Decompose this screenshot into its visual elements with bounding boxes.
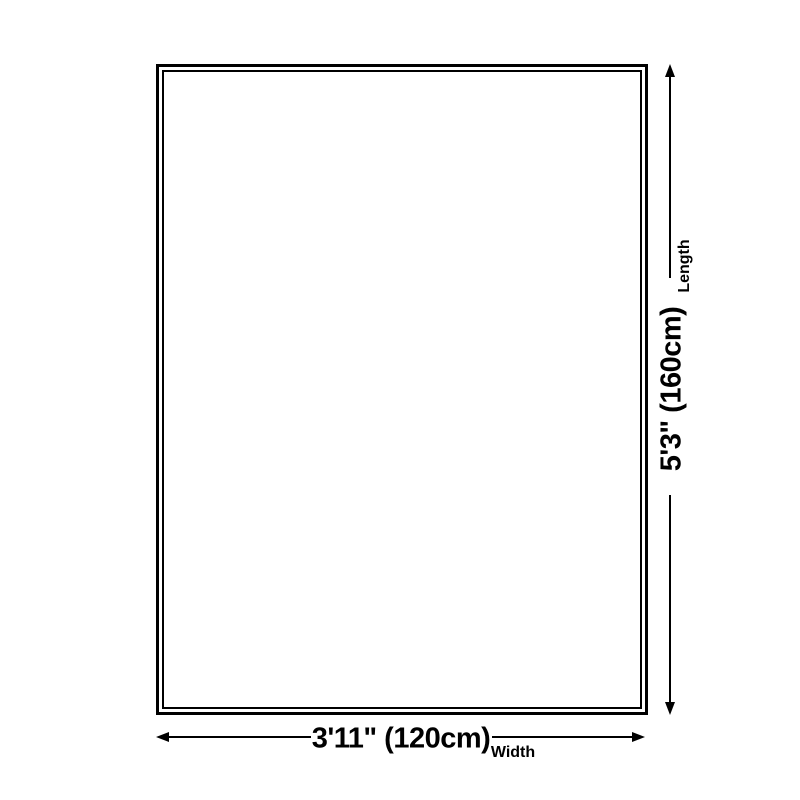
rug-inner-border (162, 70, 642, 709)
width-axis-label: Width (491, 744, 535, 762)
length-dimension-value: 5'3" (160cm) (656, 307, 689, 472)
arrow-down-icon (665, 702, 675, 715)
length-dimension-line-top (669, 77, 671, 278)
length-dimension-line-bottom (669, 495, 671, 703)
arrow-right-icon (632, 732, 645, 742)
width-dimension-line-left (168, 736, 311, 738)
width-dimension-line-right (492, 736, 633, 738)
width-dimension-value: 3'11" (120cm) (312, 723, 491, 756)
rug-size-diagram: Length 5'3" (160cm) 3'11" (120cm) Width (0, 0, 800, 800)
arrow-up-icon (665, 64, 675, 77)
rug-outline (156, 64, 648, 715)
length-axis-label: Length (676, 239, 694, 292)
